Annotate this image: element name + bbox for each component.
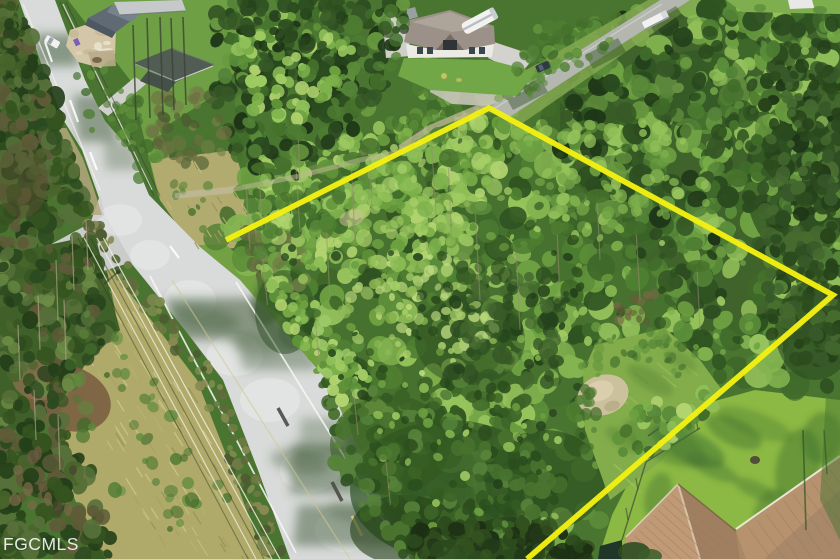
svg-text:FGCMLS: FGCMLS	[3, 534, 79, 554]
